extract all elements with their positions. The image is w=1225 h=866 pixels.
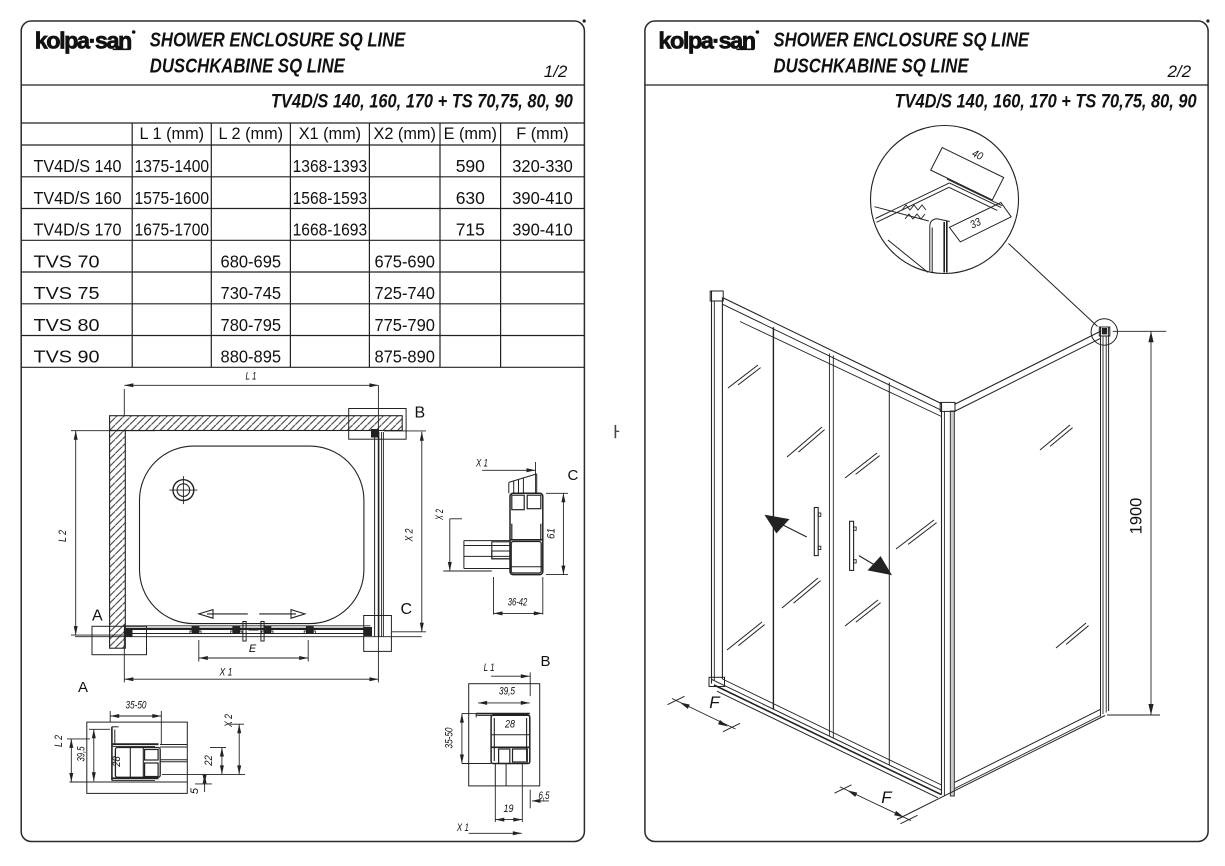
svg-text:39,5: 39,5 [499, 686, 516, 698]
svg-text:19: 19 [504, 803, 514, 815]
svg-text:L 1 (mm): L 1 (mm) [140, 125, 205, 143]
svg-text:1375-1400: 1375-1400 [135, 156, 210, 176]
svg-text:TV4D/S 140: TV4D/S 140 [34, 156, 122, 176]
svg-text:22: 22 [203, 755, 215, 766]
svg-text:F (mm): F (mm) [516, 125, 568, 143]
svg-text:X 1: X 1 [456, 822, 469, 834]
svg-text:L 1: L 1 [246, 371, 257, 383]
svg-text:715: 715 [456, 220, 485, 240]
svg-text:TVS 90: TVS 90 [34, 347, 100, 367]
svg-text:TVS 70: TVS 70 [34, 251, 100, 271]
svg-text:35-50: 35-50 [126, 700, 148, 712]
svg-text:1575-1600: 1575-1600 [135, 188, 210, 208]
svg-text:1568-1593: 1568-1593 [293, 188, 368, 208]
svg-text:880-895: 880-895 [221, 347, 282, 367]
svg-text:780-795: 780-795 [221, 315, 282, 335]
svg-text:DUSCHKABINE SQ LINE: DUSCHKABINE SQ LINE [150, 54, 346, 77]
svg-text:680-695: 680-695 [221, 251, 282, 271]
svg-text:A: A [92, 608, 103, 625]
svg-text:TVS 75: TVS 75 [34, 283, 100, 303]
svg-text:725-740: 725-740 [374, 283, 435, 303]
svg-text:61: 61 [546, 528, 558, 539]
svg-text:TV4D/S 160: TV4D/S 160 [34, 188, 122, 208]
svg-text:28: 28 [111, 756, 123, 768]
svg-text:675-690: 675-690 [374, 251, 435, 271]
svg-text:A: A [78, 679, 88, 696]
svg-text:X 2: X 2 [223, 714, 235, 728]
svg-text:DUSCHKABINE SQ LINE: DUSCHKABINE SQ LINE [774, 54, 970, 77]
svg-text:L 2: L 2 [57, 530, 69, 542]
svg-text:X 2: X 2 [434, 509, 446, 521]
svg-text:36-42: 36-42 [508, 597, 528, 609]
svg-text:1368-1393: 1368-1393 [293, 156, 368, 176]
svg-text:X 1: X 1 [219, 667, 233, 679]
svg-text:39,5: 39,5 [76, 746, 88, 762]
svg-text:630: 630 [456, 188, 485, 208]
svg-text:L 1: L 1 [484, 662, 495, 674]
svg-text:730-745: 730-745 [221, 283, 282, 303]
svg-text:L 2: L 2 [53, 735, 65, 747]
svg-text:390-410: 390-410 [512, 220, 573, 240]
svg-text:C: C [401, 601, 413, 618]
svg-text:1900: 1900 [1128, 498, 1146, 535]
svg-text:28: 28 [504, 719, 516, 731]
svg-text:35-50: 35-50 [444, 727, 456, 749]
svg-text:1/2: 1/2 [544, 62, 568, 81]
svg-text:E: E [249, 643, 257, 655]
svg-text:B: B [541, 653, 551, 670]
svg-text:L 2 (mm): L 2 (mm) [219, 125, 284, 143]
svg-text:TV4D/S 140, 160, 170 + TS 70,7: TV4D/S 140, 160, 170 + TS 70,75, 80, 90 [271, 92, 573, 113]
svg-text:SHOWER ENCLOSURE SQ LINE: SHOWER ENCLOSURE SQ LINE [150, 28, 407, 51]
svg-text:TV4D/S 140, 160, 170 + TS 70,7: TV4D/S 140, 160, 170 + TS 70,75, 80, 90 [895, 92, 1197, 113]
svg-text:B: B [415, 404, 426, 421]
svg-text:X1 (mm): X1 (mm) [299, 125, 361, 143]
svg-text:X 2: X 2 [404, 529, 416, 543]
svg-text:X2 (mm): X2 (mm) [373, 125, 435, 143]
svg-text:C: C [568, 467, 579, 484]
svg-text:F: F [709, 693, 721, 712]
svg-text:590: 590 [456, 156, 485, 176]
svg-text:E (mm): E (mm) [444, 125, 497, 143]
svg-text:SHOWER ENCLOSURE SQ LINE: SHOWER ENCLOSURE SQ LINE [774, 28, 1031, 51]
svg-text:F: F [881, 788, 893, 807]
svg-text:6,5: 6,5 [539, 790, 551, 802]
svg-text:775-790: 775-790 [374, 315, 435, 335]
svg-text:390-410: 390-410 [512, 188, 573, 208]
svg-text:320-330: 320-330 [512, 156, 573, 176]
svg-text:1668-1693: 1668-1693 [293, 220, 368, 240]
svg-text:5: 5 [189, 787, 201, 794]
svg-text:1675-1700: 1675-1700 [135, 220, 210, 240]
svg-text:875-890: 875-890 [374, 347, 435, 367]
svg-text:TV4D/S 170: TV4D/S 170 [34, 220, 122, 240]
svg-text:TVS 80: TVS 80 [34, 315, 100, 335]
svg-text:2/2: 2/2 [1166, 62, 1191, 81]
svg-text:X 1: X 1 [475, 458, 488, 470]
